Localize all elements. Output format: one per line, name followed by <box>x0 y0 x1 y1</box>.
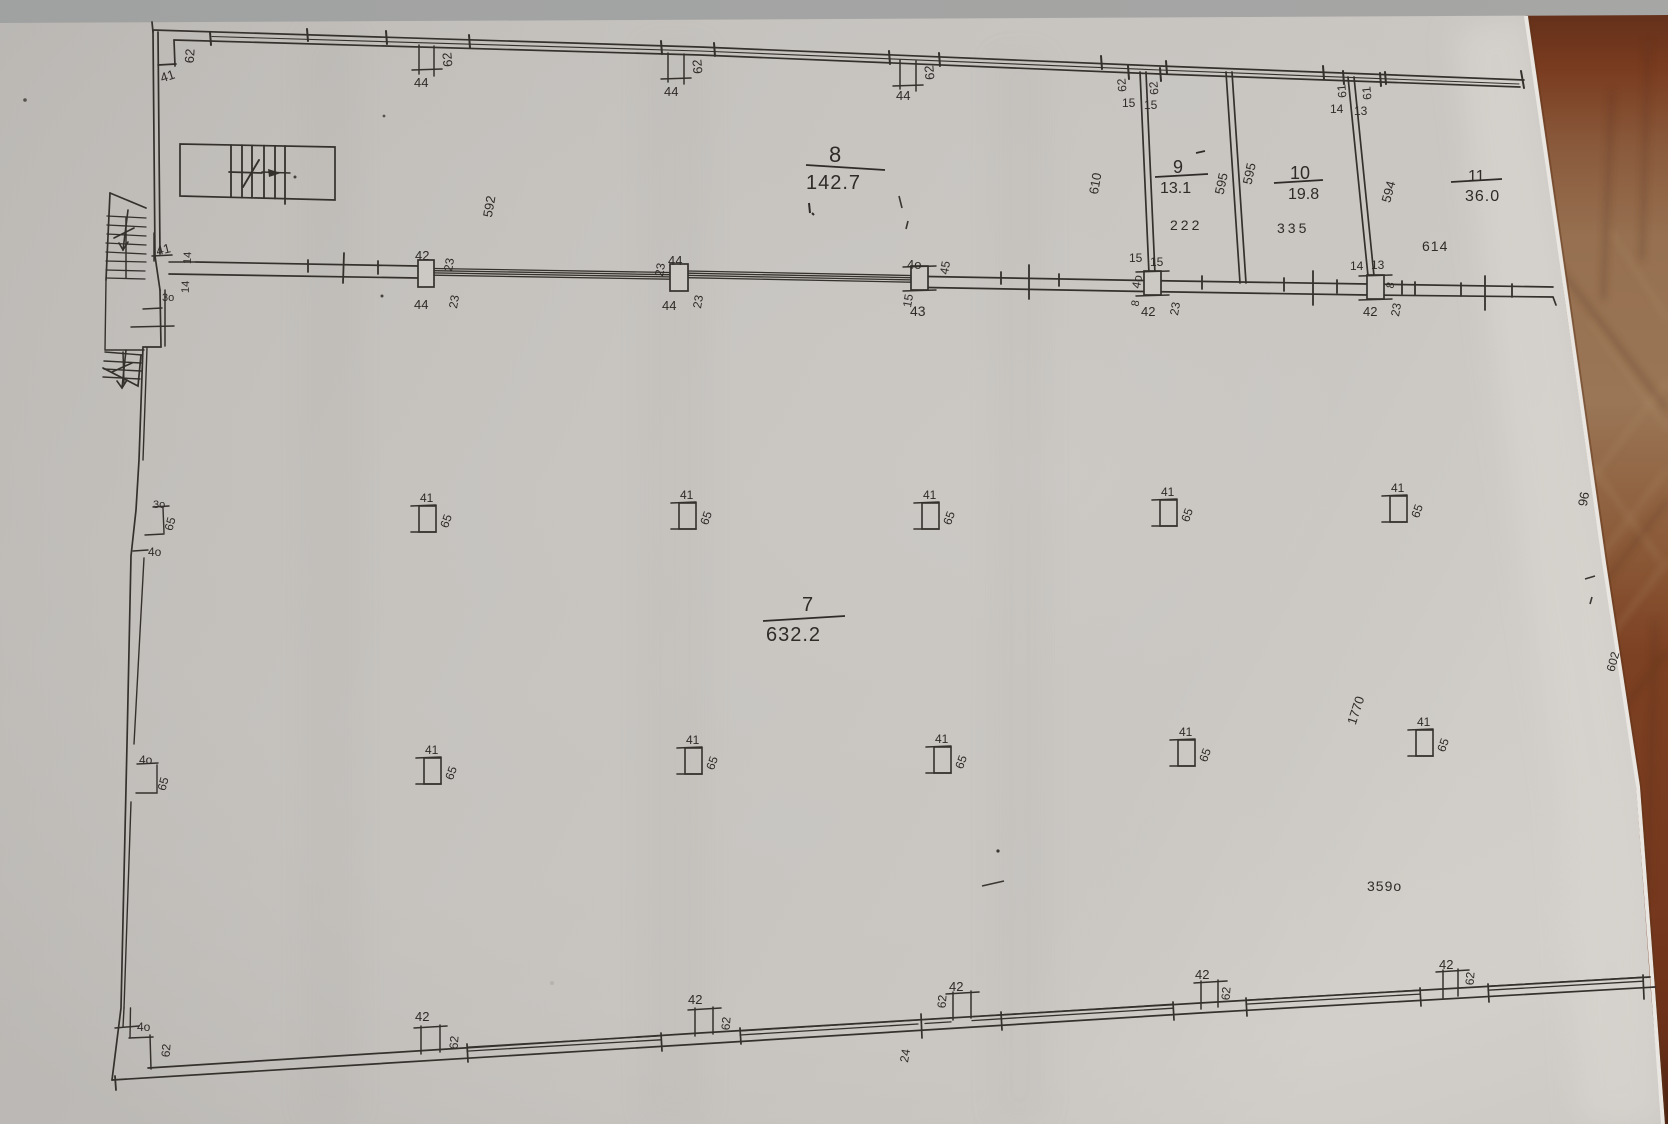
svg-text:62: 62 <box>1114 78 1129 93</box>
svg-text:96: 96 <box>1575 491 1592 508</box>
svg-text:62: 62 <box>718 1016 733 1031</box>
svg-text:41: 41 <box>1391 481 1405 495</box>
svg-text:44: 44 <box>896 88 910 103</box>
svg-text:42: 42 <box>1439 957 1453 972</box>
svg-text:10: 10 <box>1290 163 1310 183</box>
svg-text:62: 62 <box>1146 81 1161 96</box>
svg-text:42: 42 <box>415 248 429 263</box>
svg-text:8: 8 <box>829 142 841 167</box>
svg-text:4o: 4o <box>137 1020 151 1034</box>
svg-text:41: 41 <box>923 488 937 502</box>
svg-text:62: 62 <box>439 52 455 68</box>
svg-text:42: 42 <box>949 979 963 994</box>
svg-text:9: 9 <box>1173 157 1183 177</box>
svg-text:4o: 4o <box>139 753 153 767</box>
svg-text:15: 15 <box>1122 96 1136 110</box>
svg-text:42: 42 <box>1195 967 1209 982</box>
svg-text:62: 62 <box>182 48 198 63</box>
svg-text:43: 43 <box>910 303 926 319</box>
svg-text:41: 41 <box>425 743 439 757</box>
svg-text:61: 61 <box>1359 86 1374 101</box>
svg-text:62: 62 <box>158 1043 173 1058</box>
svg-text:45: 45 <box>937 260 953 276</box>
svg-text:62: 62 <box>1462 971 1477 986</box>
svg-text:44: 44 <box>414 297 428 312</box>
svg-text:13.1: 13.1 <box>1160 180 1191 197</box>
svg-text:44: 44 <box>668 253 682 268</box>
svg-text:41: 41 <box>1179 725 1193 739</box>
svg-text:44: 44 <box>414 75 428 90</box>
svg-text:44: 44 <box>664 84 678 99</box>
svg-text:62: 62 <box>921 65 937 81</box>
svg-text:4o: 4o <box>148 545 162 559</box>
svg-text:23: 23 <box>446 294 462 310</box>
svg-text:614: 614 <box>1422 238 1448 254</box>
svg-text:23: 23 <box>1388 302 1404 318</box>
svg-text:41: 41 <box>680 488 694 502</box>
svg-text:11: 11 <box>1468 168 1485 185</box>
svg-text:41: 41 <box>935 732 949 746</box>
svg-text:222: 222 <box>1170 217 1202 233</box>
svg-text:41: 41 <box>686 733 700 747</box>
svg-text:41: 41 <box>1161 485 1175 499</box>
svg-text:14: 14 <box>1350 259 1364 273</box>
svg-text:62: 62 <box>934 994 949 1009</box>
svg-text:7: 7 <box>802 594 813 616</box>
svg-text:62: 62 <box>446 1035 461 1050</box>
svg-text:4o: 4o <box>907 257 921 272</box>
svg-text:23: 23 <box>690 294 706 310</box>
svg-text:632.2: 632.2 <box>766 624 821 646</box>
svg-text:41: 41 <box>1417 715 1431 729</box>
svg-text:19.8: 19.8 <box>1288 186 1319 203</box>
svg-text:3o: 3o <box>153 499 165 511</box>
svg-text:13: 13 <box>1354 104 1368 118</box>
svg-text:4o: 4o <box>1129 274 1145 290</box>
svg-text:62: 62 <box>689 59 705 75</box>
svg-text:61: 61 <box>1334 84 1349 99</box>
svg-text:335: 335 <box>1277 220 1309 236</box>
svg-text:142.7: 142.7 <box>806 172 861 194</box>
svg-text:359o: 359o <box>1367 878 1402 894</box>
svg-text:15: 15 <box>1129 251 1143 265</box>
svg-text:23: 23 <box>1167 301 1183 317</box>
svg-text:42: 42 <box>415 1009 429 1024</box>
svg-text:3o: 3o <box>162 292 174 304</box>
svg-text:15: 15 <box>1144 98 1158 112</box>
svg-text:14: 14 <box>180 281 192 294</box>
svg-text:62: 62 <box>1218 986 1233 1001</box>
svg-text:36.0: 36.0 <box>1465 188 1500 205</box>
svg-text:13: 13 <box>1371 258 1385 272</box>
svg-text:14: 14 <box>182 252 194 265</box>
svg-text:42: 42 <box>688 992 702 1007</box>
svg-text:24: 24 <box>897 1048 913 1064</box>
svg-text:41: 41 <box>420 491 434 505</box>
svg-text:23: 23 <box>441 257 457 273</box>
svg-text:44: 44 <box>662 298 676 313</box>
svg-text:23: 23 <box>652 262 668 278</box>
svg-text:14: 14 <box>1330 102 1344 116</box>
svg-text:42: 42 <box>1141 304 1155 319</box>
svg-text:42: 42 <box>1363 304 1377 319</box>
svg-text:15: 15 <box>1150 255 1164 269</box>
